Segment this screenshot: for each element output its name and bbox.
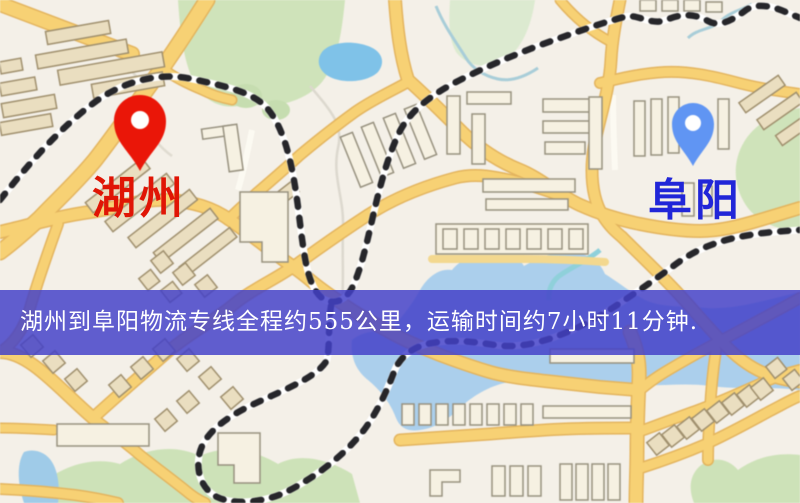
destination-pin-shape[interactable] bbox=[672, 103, 714, 166]
origin-pin-hole bbox=[131, 111, 149, 129]
route-info-banner: 湖州到阜阳物流专线全程约555公里，运输时间约7小时11分钟. bbox=[0, 290, 800, 355]
origin-pin-icon[interactable] bbox=[114, 95, 166, 171]
origin-city-label: 湖州 bbox=[92, 177, 186, 221]
route-info-text: 湖州到阜阳物流专线全程约555公里，运输时间约7小时11分钟. bbox=[20, 309, 698, 335]
destination-pin-hole bbox=[685, 115, 701, 131]
destination-city-label: 阜阳 bbox=[648, 179, 742, 223]
origin-pin-shape[interactable] bbox=[114, 95, 166, 171]
map-canvas[interactable] bbox=[0, 0, 800, 503]
map-page: 湖州 阜阳 湖州到阜阳物流专线全程约555公里，运输时间约7小时11分钟. bbox=[0, 0, 800, 503]
destination-pin-icon[interactable] bbox=[672, 103, 714, 166]
